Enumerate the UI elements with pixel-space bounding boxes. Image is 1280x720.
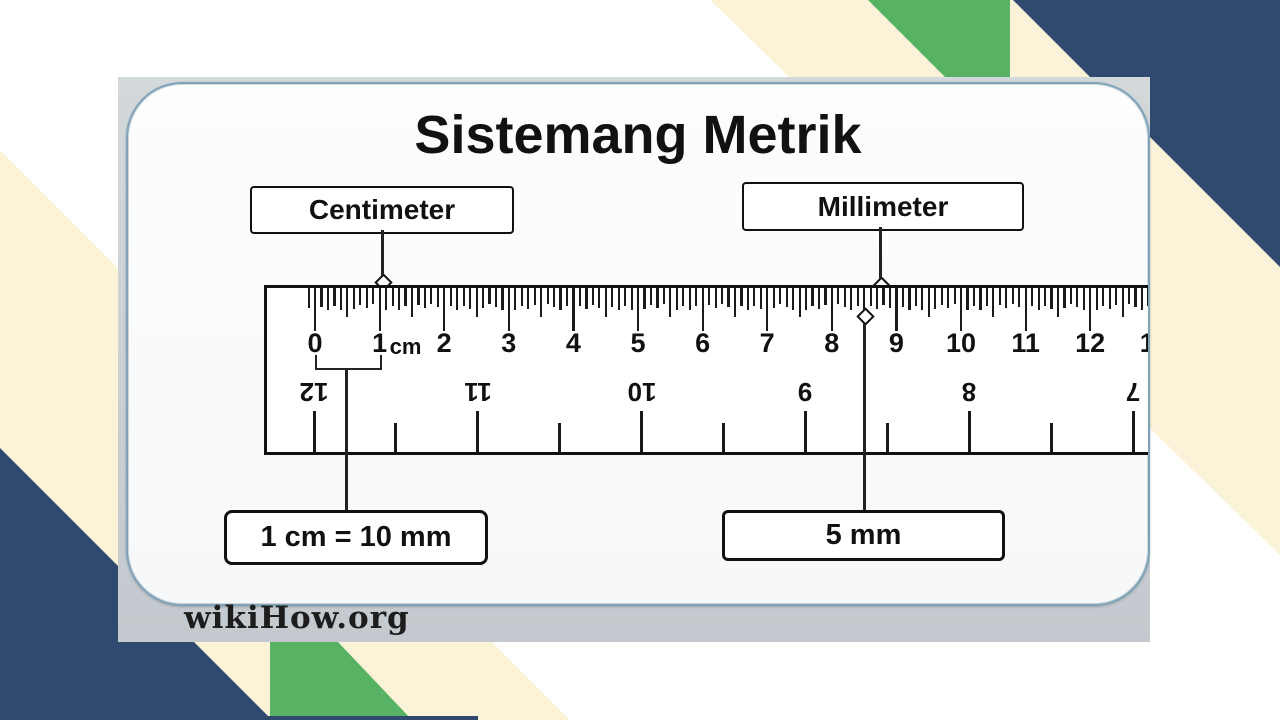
tick [372,288,374,304]
tick [941,288,943,305]
tick [558,423,561,452]
tick [1076,288,1078,307]
tick [424,288,426,308]
tick [394,423,397,452]
tick [359,288,361,305]
inch-number: 12 [292,376,336,407]
tick [727,288,729,307]
tick [430,288,432,304]
tick [508,288,510,331]
tick [598,288,600,308]
tick [1031,288,1033,306]
tick [1063,288,1065,308]
tick [495,288,497,307]
ruler-photo: Sistemang Metrik Centimeter Millimeter 0… [118,77,1150,642]
tick [1070,288,1072,304]
tick [1141,288,1143,310]
tick [1012,288,1014,304]
tick [1128,288,1130,304]
tick [682,288,684,306]
tick [398,288,400,310]
tick [966,288,968,310]
tick [1089,288,1091,331]
tick [482,288,484,308]
tick [844,288,846,307]
tick [340,288,342,310]
tick [695,288,697,306]
inch-number: 9 [783,376,827,407]
tick [1109,288,1111,309]
tick [656,288,658,308]
five-mm-label: 5 mm [826,519,902,552]
tick [968,411,971,452]
tick [740,288,742,306]
cm-number: 6 [683,328,723,359]
diagram-title: Sistemang Metrik [128,104,1148,166]
tick [1005,288,1007,308]
tick [501,288,503,310]
cm-unit-label: cm [390,334,422,360]
inch-number: 7 [1111,376,1150,407]
tick [463,288,465,306]
tick [824,288,826,305]
tick [986,288,988,306]
tick [313,411,316,452]
cm-number: 9 [876,328,916,359]
tick [708,288,710,305]
cm-equation-label: 1 cm = 10 mm [260,521,451,554]
five-mm-box: 5 mm [722,510,1005,561]
tick [314,288,316,331]
tick [1057,288,1059,317]
tick [837,288,839,304]
five-mm-pointer-line [863,315,866,510]
tick [669,288,671,317]
tick [1102,288,1104,306]
tick [514,288,516,310]
tick [1025,288,1027,331]
tick [1147,288,1149,306]
tick [799,288,801,317]
tick [857,288,859,306]
tick [960,288,962,331]
tick [663,288,665,304]
tick [1050,423,1053,452]
diagram-card: Sistemang Metrik Centimeter Millimeter 0… [126,82,1150,606]
tick [850,288,852,310]
tick [766,288,768,331]
cm-number: 4 [553,328,593,359]
tick [721,288,723,304]
tick [456,288,458,310]
tick [773,288,775,308]
tick [437,288,439,307]
tick [886,423,889,452]
tick [779,288,781,304]
tick [792,288,794,310]
inch-number: 8 [947,376,991,407]
tick [954,288,956,304]
tick [559,288,561,310]
tick [973,288,975,306]
tick [947,288,949,308]
tick [882,288,884,305]
tick [992,288,994,317]
tick [831,288,833,331]
centimeter-label-box: Centimeter [250,186,514,234]
tick [902,288,904,307]
tick [1134,288,1136,307]
cm-number: 11 [1006,328,1046,359]
tick [572,288,574,331]
tick [934,288,936,309]
tick [805,288,807,310]
cm-number: 12 [1070,328,1110,359]
tick [476,411,479,452]
tick [605,288,607,317]
cm-number: 13 [1135,328,1150,359]
tick [540,288,542,317]
tick [1122,288,1124,317]
cm-number: 3 [489,328,529,359]
millimeter-label: Millimeter [818,191,949,223]
cm-number: 7 [747,328,787,359]
one-cm-bracket [315,355,382,370]
tick [811,288,813,306]
tick [870,288,872,306]
tick [1018,288,1020,307]
tick [631,288,633,310]
centimeter-label: Centimeter [309,194,455,226]
tick [637,288,639,331]
tick [521,288,523,306]
tick [346,288,348,317]
tick [624,288,626,306]
millimeter-label-box: Millimeter [742,182,1024,231]
tick [676,288,678,310]
tick [611,288,613,307]
tick [592,288,594,305]
tick [702,288,704,331]
tick [640,411,643,452]
wikihow-watermark: wikiHow.org [184,600,410,636]
tick [979,288,981,310]
tick [760,288,762,309]
tick [547,288,549,304]
tick [1132,411,1135,452]
tick [327,288,329,310]
tick [1050,288,1052,309]
tick [876,288,878,309]
tick [320,288,322,307]
cm-equation-box: 1 cm = 10 mm [224,510,488,565]
tick [643,288,645,309]
tick [366,288,368,308]
tick [715,288,717,308]
tick [747,288,749,310]
tick [915,288,917,306]
tick [308,288,310,308]
tick [921,288,923,310]
tick [1115,288,1117,305]
tick [379,288,381,331]
tick [443,288,445,331]
tick [488,288,490,304]
tick [999,288,1001,305]
inch-number: 10 [620,376,664,407]
tick [579,288,581,306]
tick [818,288,820,309]
cm-number: 10 [941,328,981,359]
tick [650,288,652,305]
tick [722,423,725,452]
tick [1044,288,1046,306]
tick [553,288,555,307]
tick [469,288,471,309]
tick [734,288,736,317]
tick [689,288,691,310]
tick [753,288,755,306]
tick [527,288,529,309]
tick [353,288,355,309]
tick [908,288,910,310]
tick [1038,288,1040,310]
tick [804,411,807,452]
inch-number: 11 [456,376,500,407]
tick [417,288,419,305]
cm-number: 2 [424,328,464,359]
tick [1096,288,1098,310]
ruler: 012345678910111213 cm 121110987 [264,285,1150,455]
tick [585,288,587,309]
tick [404,288,406,306]
tick [928,288,930,317]
tick [385,288,387,310]
millimeter-pointer-line [879,227,882,282]
tick [889,288,891,308]
tick [411,288,413,317]
cm-number: 5 [618,328,658,359]
tick [392,288,394,306]
tick [786,288,788,307]
cm-equation-pointer-line [345,368,348,510]
tick [566,288,568,306]
cm-number: 8 [812,328,852,359]
tick [618,288,620,310]
tick [1083,288,1085,310]
slide: Sistemang Metrik Centimeter Millimeter 0… [0,0,1280,720]
tick [450,288,452,306]
tick [534,288,536,305]
tick [895,288,897,331]
tick [476,288,478,317]
tick [333,288,335,306]
